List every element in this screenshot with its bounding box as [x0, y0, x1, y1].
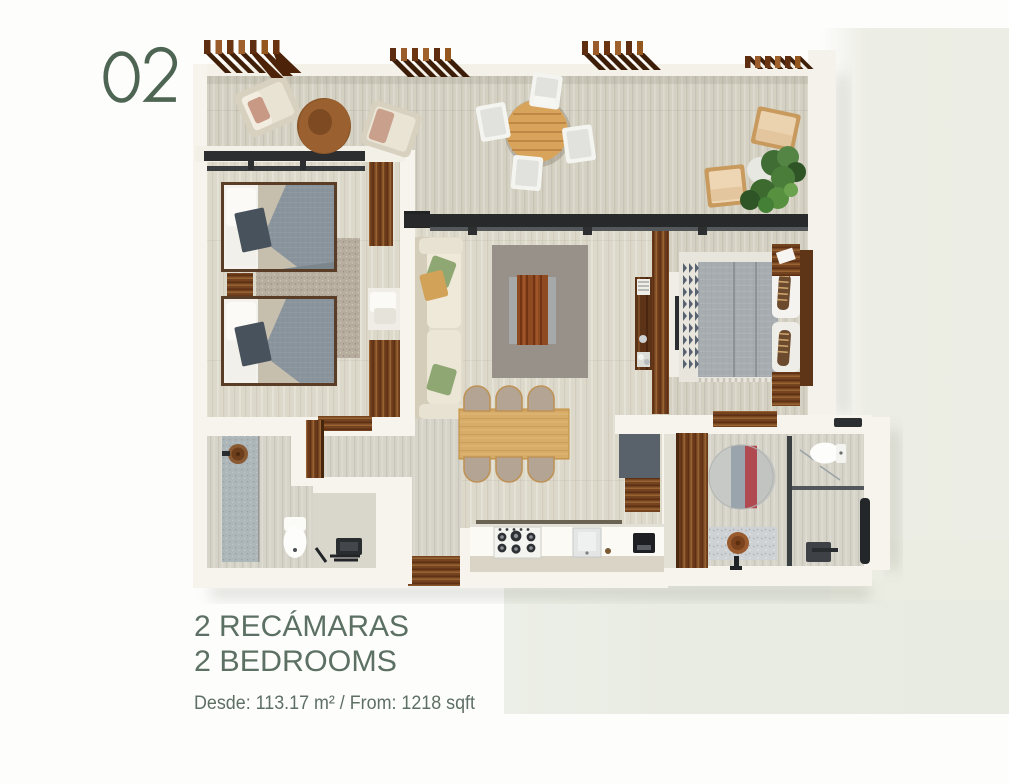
svg-text:Desde: 113.17 m² / From: 1218: Desde: 113.17 m² / From: 1218 sqft: [194, 693, 476, 714]
svg-text:2 RECÁMARAS: 2 RECÁMARAS: [194, 610, 409, 643]
svg-text:2 BEDROOMS: 2 BEDROOMS: [194, 645, 397, 678]
